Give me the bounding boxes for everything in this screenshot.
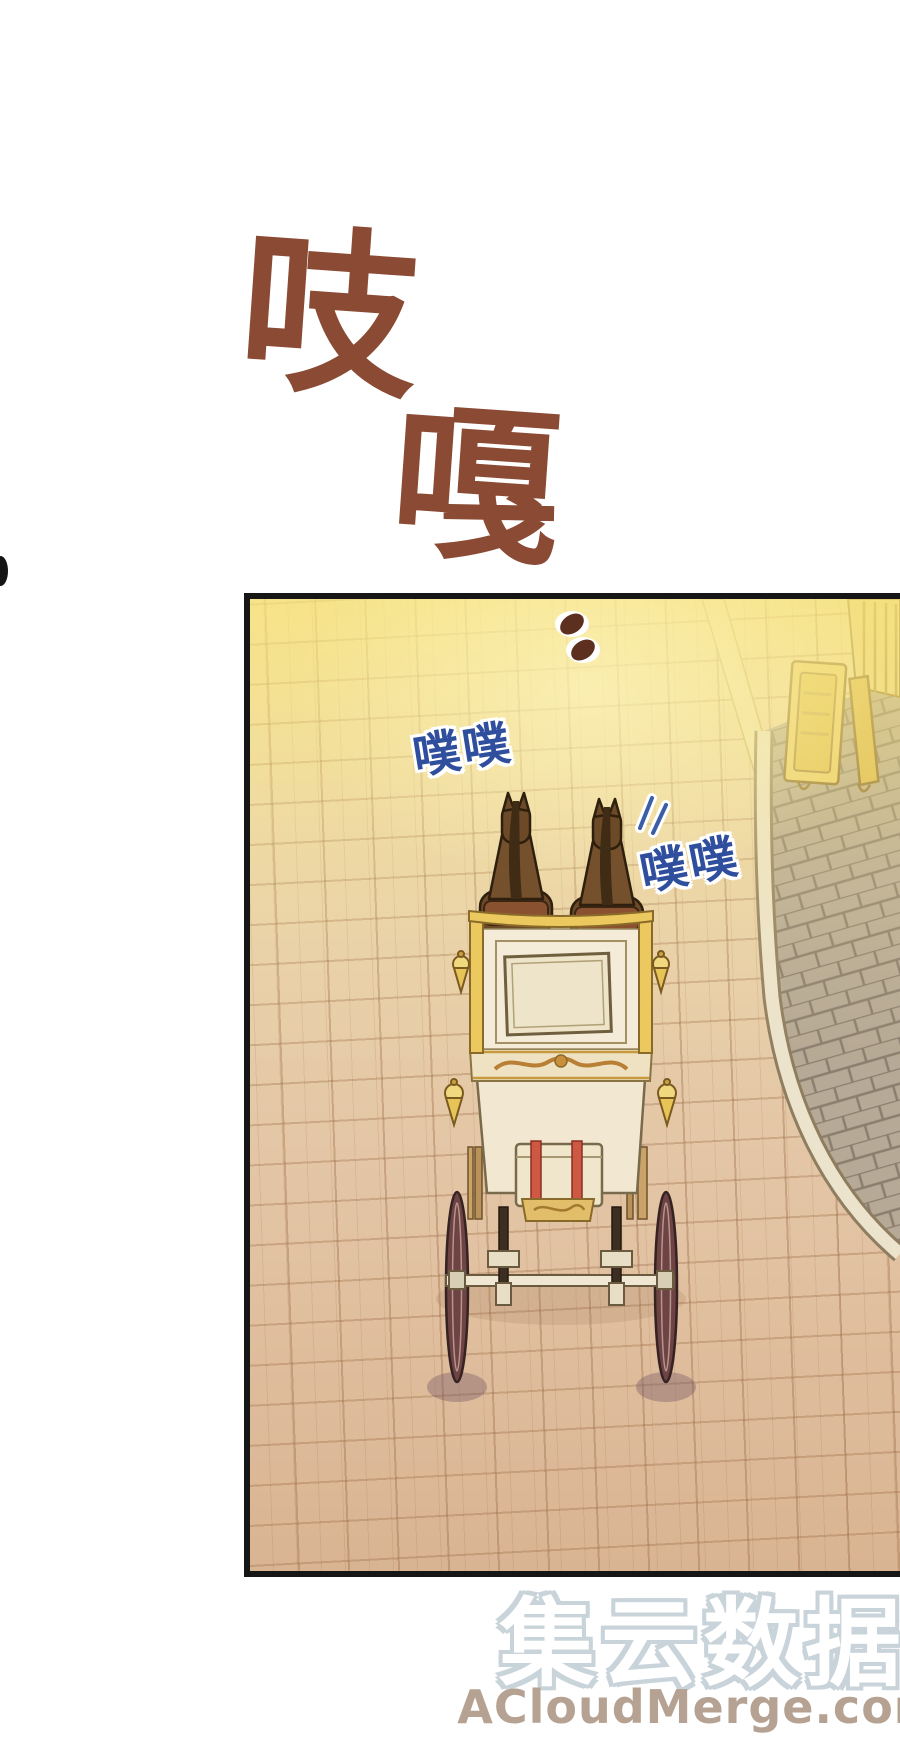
carriage-ornament-band [470, 1049, 652, 1081]
carriage-roof [469, 911, 653, 1053]
page-edge-ink-mark [0, 556, 8, 586]
motion-marks-icon [640, 798, 666, 833]
sfx-hoofbeat-text-1: 噗噗 [410, 719, 516, 781]
watermark-url: ACloudMerge.com [457, 1684, 900, 1730]
luggage-trunk [516, 1141, 602, 1221]
watermark-chinese: 集云数据 [499, 1596, 900, 1692]
sfx-creak-text-2: 嘎 [386, 396, 565, 575]
comic-page: { "sfx": { "creak_char_1": "吱", "creak_c… [0, 0, 900, 1740]
ditto-dots-icon [555, 609, 600, 665]
comic-panel: 噗噗 噗噗 [244, 593, 900, 1577]
sfx-creak-text-1: 吱 [234, 220, 424, 410]
carriage-scene [250, 599, 900, 1571]
